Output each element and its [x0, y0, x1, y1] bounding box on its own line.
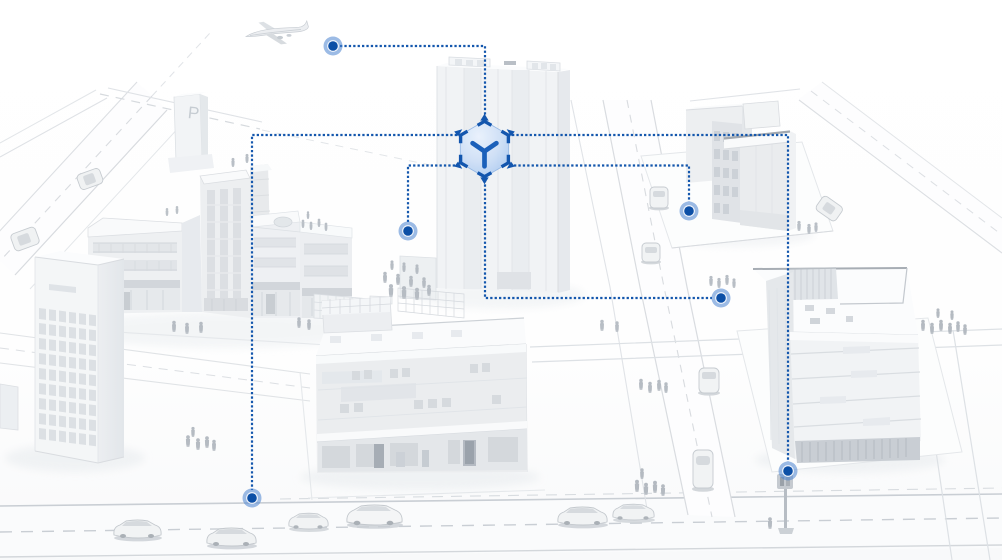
svg-text:P: P: [187, 103, 200, 123]
